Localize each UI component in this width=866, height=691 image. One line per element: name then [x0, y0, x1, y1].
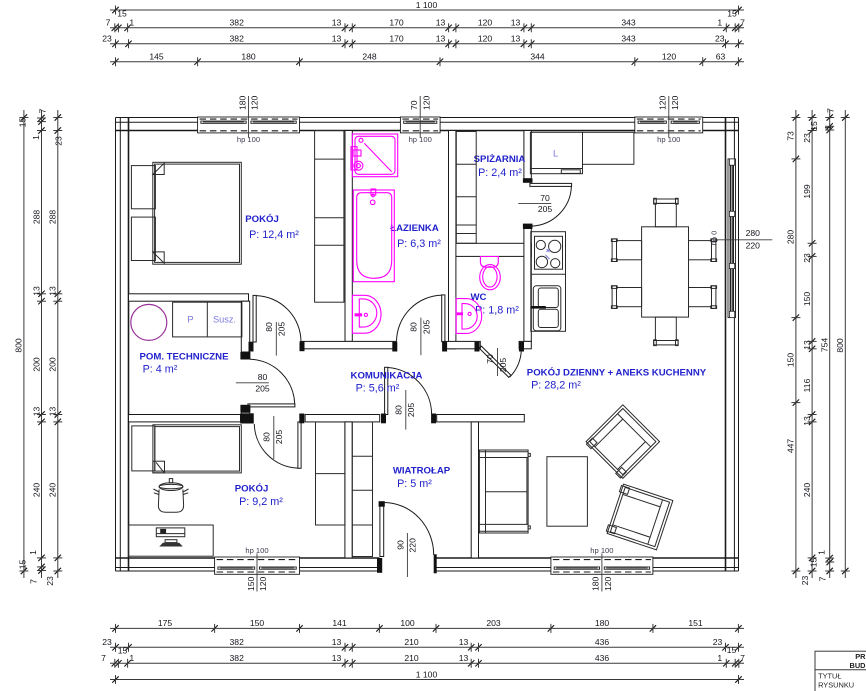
svg-text:KOMUNIKACJA: KOMUNIKACJA: [351, 371, 423, 382]
svg-text:80: 80: [261, 432, 271, 442]
svg-text:180: 180: [595, 618, 610, 628]
svg-text:13: 13: [332, 653, 342, 663]
svg-text:1: 1: [28, 550, 38, 555]
svg-text:120: 120: [670, 95, 680, 110]
svg-text:23: 23: [54, 136, 64, 146]
svg-text:Susz.: Susz.: [213, 315, 236, 325]
svg-text:151: 151: [688, 618, 703, 628]
svg-text:13: 13: [332, 18, 342, 28]
svg-text:120: 120: [258, 576, 268, 591]
svg-text:141: 141: [332, 618, 347, 628]
svg-text:1: 1: [129, 18, 134, 28]
svg-text:WIATROŁAP: WIATROŁAP: [393, 466, 451, 477]
svg-text:1: 1: [129, 653, 134, 663]
svg-text:7: 7: [740, 18, 745, 28]
svg-text:80: 80: [409, 322, 419, 332]
svg-text:150: 150: [802, 292, 812, 307]
svg-text:WC: WC: [471, 292, 487, 303]
svg-text:7: 7: [101, 653, 106, 663]
svg-text:70: 70: [540, 193, 550, 203]
svg-text:15: 15: [18, 560, 28, 570]
svg-text:170: 170: [389, 18, 404, 28]
svg-text:120: 120: [478, 18, 493, 28]
svg-text:hp 100: hp 100: [657, 135, 680, 144]
svg-text:L: L: [553, 149, 558, 159]
svg-text:800: 800: [835, 338, 845, 353]
svg-text:248: 248: [362, 52, 377, 62]
svg-text:15: 15: [727, 9, 737, 19]
svg-text:180: 180: [237, 95, 247, 110]
svg-text:7: 7: [818, 576, 828, 581]
svg-text:199: 199: [802, 184, 812, 199]
svg-text:382: 382: [230, 653, 245, 663]
svg-text:180: 180: [241, 52, 256, 62]
svg-text:P: 5,6 m²: P: 5,6 m²: [356, 383, 400, 395]
svg-text:P: 12,4 m²: P: 12,4 m²: [249, 229, 299, 241]
svg-text:344: 344: [530, 52, 545, 62]
svg-text:200: 200: [31, 357, 41, 372]
svg-text:205: 205: [277, 322, 287, 337]
svg-text:203: 203: [486, 618, 501, 628]
svg-text:288: 288: [48, 210, 58, 225]
svg-text:13: 13: [436, 18, 446, 28]
svg-text:15: 15: [727, 645, 737, 655]
svg-text:80: 80: [264, 322, 274, 332]
svg-text:13: 13: [436, 34, 446, 44]
svg-text:13: 13: [511, 34, 521, 44]
svg-text:POM. TECHNICZNE: POM. TECHNICZNE: [139, 352, 229, 363]
svg-text:13: 13: [802, 416, 812, 426]
svg-text:120: 120: [421, 95, 431, 110]
svg-text:447: 447: [786, 439, 796, 454]
svg-text:116: 116: [802, 378, 812, 392]
svg-text:15: 15: [809, 558, 819, 568]
svg-text:382: 382: [230, 637, 245, 647]
svg-text:150: 150: [250, 618, 265, 628]
svg-text:POKÓJ DZIENNY + ANEKS KUCHENNY: POKÓJ DZIENNY + ANEKS KUCHENNY: [527, 367, 707, 379]
svg-text:180: 180: [591, 576, 601, 591]
svg-text:P: 4 m²: P: 4 m²: [143, 364, 178, 376]
svg-text:280: 280: [746, 228, 761, 238]
svg-text:P: 9,2 m²: P: 9,2 m²: [239, 496, 283, 508]
svg-text:1: 1: [717, 18, 722, 28]
svg-text:7: 7: [29, 579, 39, 584]
svg-text:120: 120: [478, 34, 493, 44]
svg-text:P: 6,3 m²: P: 6,3 m²: [397, 238, 441, 250]
svg-text:P: P: [187, 315, 193, 325]
svg-text:23: 23: [45, 576, 55, 586]
svg-text:220: 220: [408, 538, 418, 553]
svg-text:80: 80: [393, 405, 403, 415]
svg-text:1: 1: [717, 653, 722, 663]
svg-text:150: 150: [246, 576, 256, 591]
svg-text:POKÓJ: POKÓJ: [235, 483, 269, 495]
svg-text:120: 120: [662, 52, 677, 62]
svg-text:120: 120: [658, 95, 668, 110]
svg-text:1: 1: [31, 135, 41, 140]
svg-text:BUD: BUD: [849, 661, 866, 670]
svg-text:1: 1: [817, 550, 827, 555]
svg-text:23: 23: [715, 34, 725, 44]
svg-text:13: 13: [48, 407, 58, 417]
svg-text:70: 70: [409, 100, 419, 110]
svg-text:800: 800: [14, 338, 24, 353]
svg-text:15: 15: [118, 646, 128, 656]
svg-text:13: 13: [459, 653, 469, 663]
svg-text:73: 73: [786, 131, 796, 141]
svg-text:205: 205: [255, 383, 270, 393]
svg-text:7: 7: [38, 108, 48, 113]
svg-text:ŁAZIENKA: ŁAZIENKA: [390, 223, 439, 234]
svg-text:13: 13: [31, 286, 41, 296]
svg-text:13: 13: [511, 18, 521, 28]
svg-text:63: 63: [716, 52, 726, 62]
svg-text:23: 23: [102, 34, 112, 44]
svg-text:13: 13: [459, 637, 469, 647]
svg-text:hp 100: hp 100: [409, 135, 432, 144]
svg-text:P: 2,4 m²: P: 2,4 m²: [478, 167, 522, 179]
svg-text:15: 15: [18, 118, 28, 128]
svg-text:343: 343: [621, 18, 636, 28]
svg-text:343: 343: [621, 34, 636, 44]
svg-text:23: 23: [800, 576, 810, 586]
svg-text:205: 205: [421, 320, 431, 335]
svg-text:P: 28,2 m²: P: 28,2 m²: [531, 380, 581, 392]
svg-text:TYTUŁ: TYTUŁ: [818, 672, 841, 681]
svg-text:15: 15: [117, 9, 127, 19]
svg-text:175: 175: [158, 618, 173, 628]
svg-text:70: 70: [485, 354, 495, 364]
svg-text:170: 170: [389, 34, 404, 44]
svg-text:210: 210: [404, 637, 419, 647]
svg-text:205: 205: [274, 430, 284, 445]
svg-text:RYSUNKU: RYSUNKU: [818, 680, 854, 689]
svg-text:23: 23: [802, 133, 812, 143]
svg-text:145: 145: [149, 52, 164, 62]
svg-text:280: 280: [786, 230, 796, 245]
svg-text:150: 150: [786, 353, 796, 368]
svg-text:80: 80: [258, 372, 268, 382]
svg-text:210: 210: [404, 653, 419, 663]
svg-text:POKÓJ: POKÓJ: [245, 213, 279, 225]
svg-text:P: 5 m²: P: 5 m²: [397, 478, 432, 490]
svg-text:hp 100: hp 100: [237, 135, 260, 144]
svg-text:120: 120: [603, 576, 613, 591]
svg-text:7: 7: [106, 18, 111, 28]
svg-text:382: 382: [230, 34, 245, 44]
svg-text:205: 205: [498, 358, 508, 373]
svg-text:hp 0: hp 0: [710, 231, 719, 246]
svg-text:240: 240: [802, 483, 812, 498]
svg-text:hp 100: hp 100: [245, 546, 268, 555]
svg-text:7: 7: [740, 653, 745, 663]
svg-text:1: 1: [823, 125, 833, 130]
svg-text:hp 100: hp 100: [590, 546, 613, 555]
svg-text:SPIŻARNIA: SPIŻARNIA: [474, 154, 526, 165]
svg-text:1 100: 1 100: [416, 669, 438, 679]
svg-text:220: 220: [746, 241, 761, 251]
svg-text:240: 240: [31, 483, 41, 498]
svg-text:PR: PR: [855, 652, 866, 661]
svg-text:15: 15: [809, 121, 819, 131]
svg-text:100: 100: [400, 618, 415, 628]
svg-text:436: 436: [595, 653, 610, 663]
svg-text:13: 13: [332, 637, 342, 647]
svg-text:90: 90: [395, 540, 405, 550]
svg-text:23: 23: [802, 253, 812, 263]
svg-text:288: 288: [31, 210, 41, 225]
svg-text:13: 13: [31, 407, 41, 417]
svg-text:240: 240: [48, 483, 58, 498]
svg-text:23: 23: [713, 637, 723, 647]
svg-text:7: 7: [826, 108, 836, 113]
svg-text:1 100: 1 100: [416, 0, 438, 10]
svg-text:13: 13: [48, 286, 58, 296]
svg-text:382: 382: [230, 18, 245, 28]
svg-text:436: 436: [595, 637, 610, 647]
svg-text:205: 205: [538, 204, 553, 214]
svg-text:120: 120: [250, 95, 260, 110]
svg-text:205: 205: [406, 403, 416, 418]
svg-text:754: 754: [820, 338, 830, 353]
svg-text:200: 200: [48, 357, 58, 372]
svg-text:23: 23: [102, 637, 112, 647]
svg-text:13: 13: [802, 340, 812, 350]
svg-text:13: 13: [332, 34, 342, 44]
